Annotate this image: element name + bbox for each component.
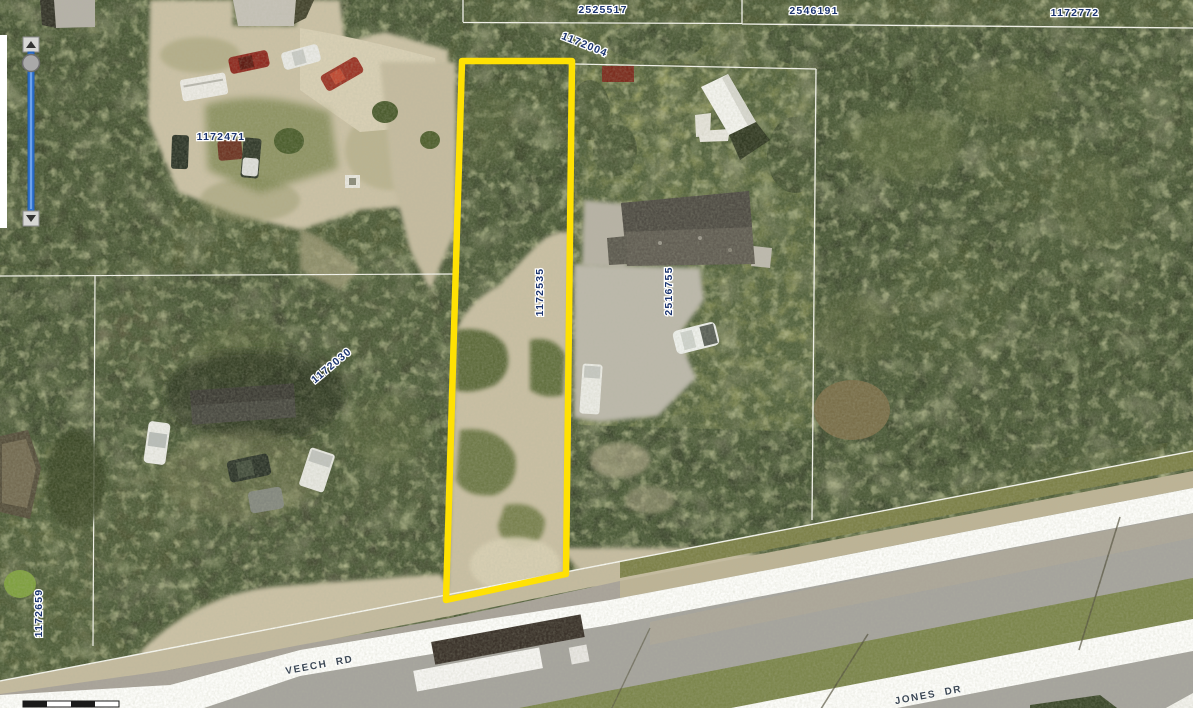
svg-text:1172535: 1172535 <box>534 268 546 317</box>
svg-text:2525517: 2525517 <box>578 4 627 16</box>
svg-text:2516755: 2516755 <box>663 266 675 315</box>
svg-text:2546191: 2546191 <box>789 5 838 17</box>
svg-text:1172659: 1172659 <box>33 589 45 638</box>
svg-text:1172772: 1172772 <box>1051 7 1100 19</box>
svg-text:1172471: 1172471 <box>197 131 246 143</box>
